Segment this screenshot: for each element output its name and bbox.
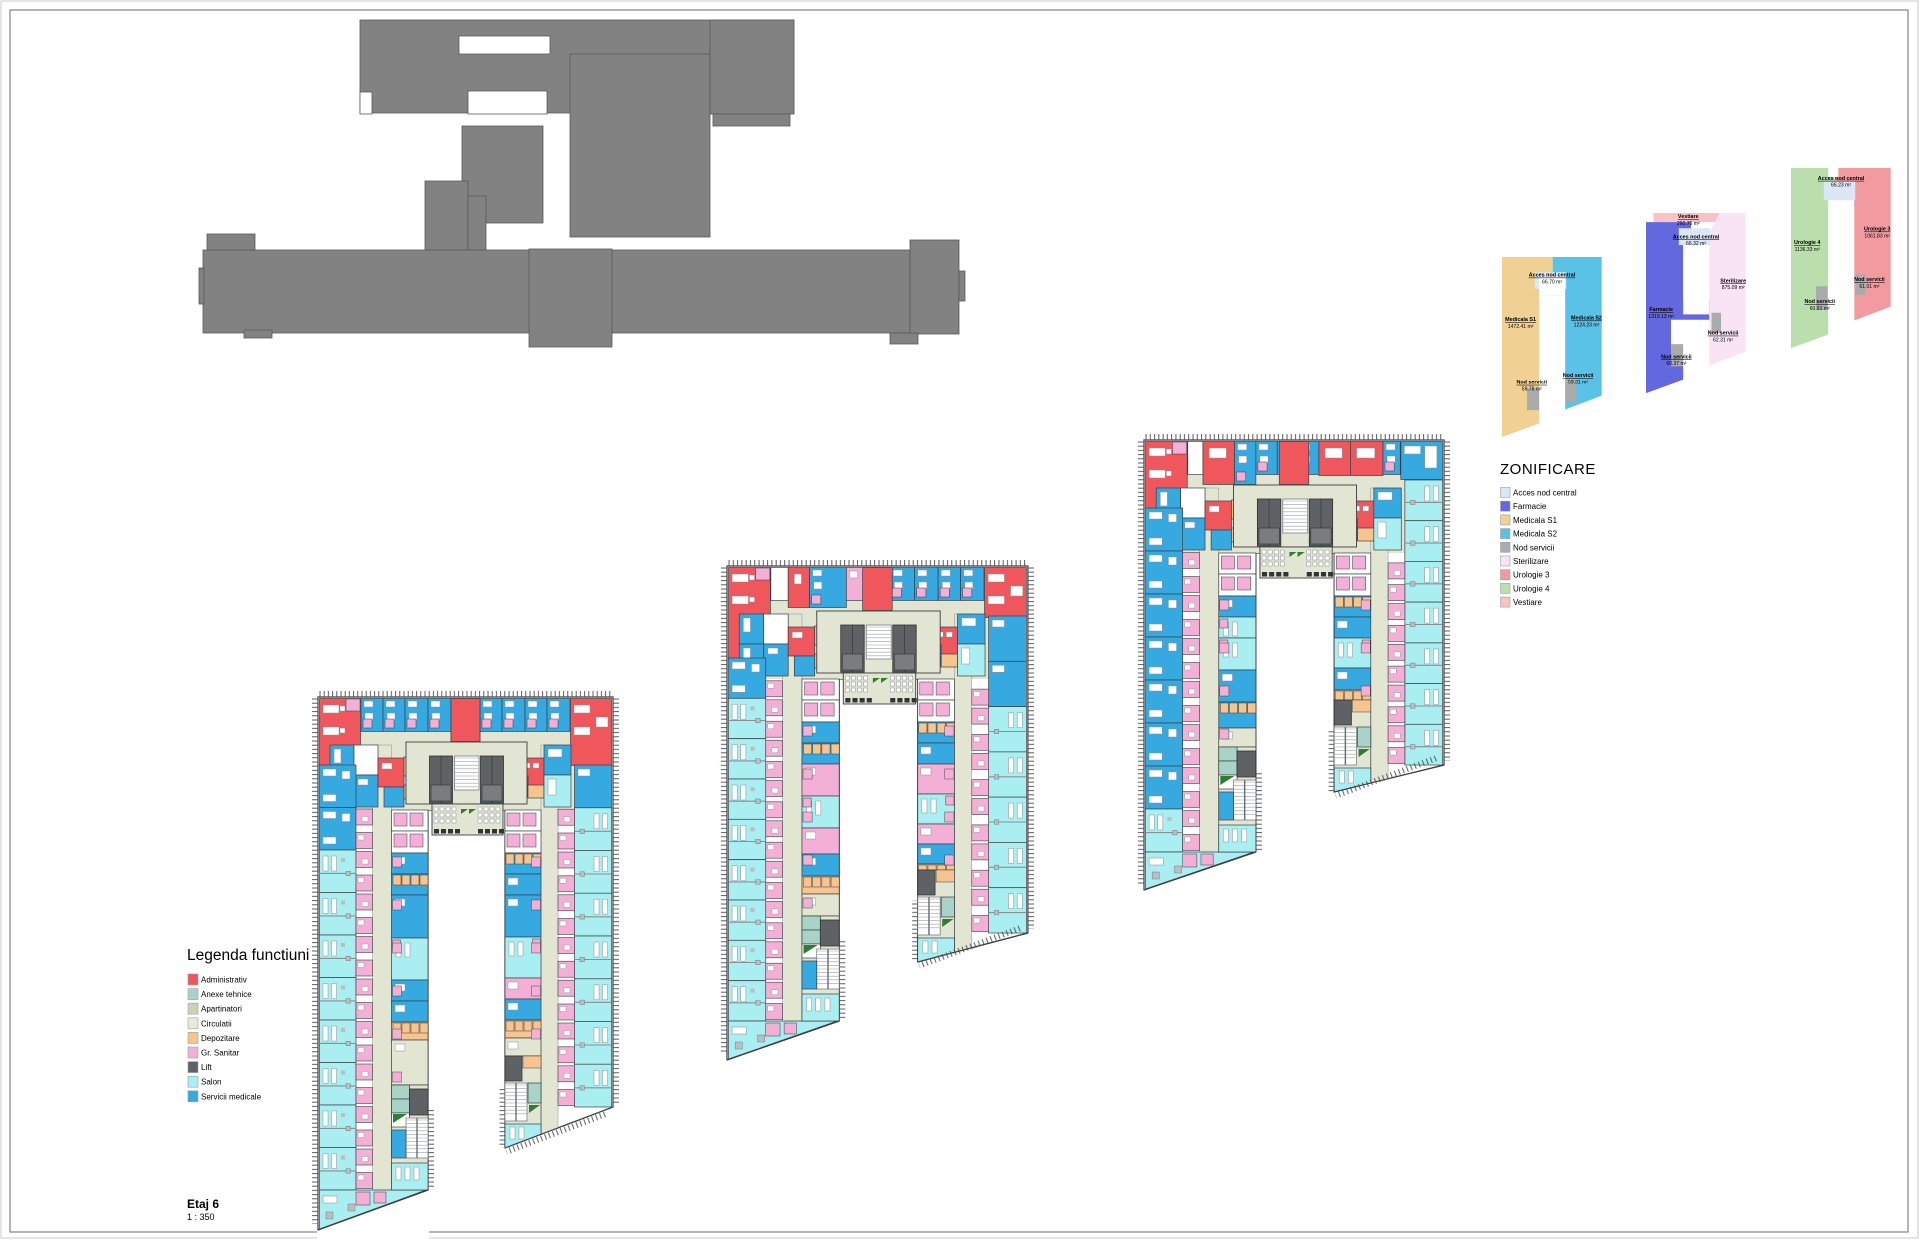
svg-text:Urologie 3: Urologie 3	[1513, 571, 1550, 580]
svg-text:60.37 m²: 60.37 m²	[1666, 361, 1686, 367]
svg-text:Sterilizare: Sterilizare	[1513, 557, 1549, 566]
svg-text:Nod servicii: Nod servicii	[1516, 380, 1547, 386]
svg-text:Nod servicii: Nod servicii	[1513, 543, 1555, 552]
svg-text:59.31 m²: 59.31 m²	[1568, 380, 1588, 386]
svg-text:Medicala S1: Medicala S1	[1505, 317, 1536, 323]
svg-text:1472.41 m²: 1472.41 m²	[1508, 324, 1534, 330]
svg-text:Vestiare: Vestiare	[1678, 214, 1699, 220]
svg-text:Farmacie: Farmacie	[1649, 307, 1673, 313]
svg-text:1136.33 m²: 1136.33 m²	[1795, 247, 1821, 253]
svg-text:Depozitare: Depozitare	[201, 1034, 240, 1043]
svg-text:Acces nod central: Acces nod central	[1513, 489, 1577, 498]
svg-text:Farmacie: Farmacie	[1513, 502, 1547, 511]
svg-text:60.91 m²: 60.91 m²	[1810, 306, 1830, 312]
svg-text:1 : 350: 1 : 350	[187, 1212, 215, 1222]
svg-text:Medicala S2: Medicala S2	[1571, 316, 1602, 322]
svg-text:Medicala S2: Medicala S2	[1513, 530, 1558, 539]
svg-text:61.01 m²: 61.01 m²	[1859, 284, 1879, 290]
svg-text:Gr. Sanitar: Gr. Sanitar	[201, 1049, 240, 1058]
svg-text:Urologie 4: Urologie 4	[1794, 240, 1820, 246]
svg-text:Medicala S1: Medicala S1	[1513, 516, 1558, 525]
svg-text:Etaj 6: Etaj 6	[187, 1197, 219, 1211]
svg-text:ZONIFICARE: ZONIFICARE	[1500, 461, 1596, 478]
svg-text:1061.83 m²: 1061.83 m²	[1864, 233, 1890, 239]
svg-text:Acces nod central: Acces nod central	[1529, 273, 1576, 279]
svg-text:Nod servicii: Nod servicii	[1804, 299, 1835, 305]
svg-text:Servicii medicale: Servicii medicale	[201, 1092, 262, 1101]
svg-text:Vestiare: Vestiare	[1513, 598, 1542, 607]
svg-text:Nod servicii: Nod servicii	[1708, 331, 1739, 337]
svg-text:Nod servicii: Nod servicii	[1854, 277, 1885, 283]
svg-text:Salon: Salon	[201, 1078, 221, 1087]
svg-text:Acces nod central: Acces nod central	[1818, 176, 1865, 182]
svg-text:59.78 m²: 59.78 m²	[1522, 387, 1542, 393]
svg-text:Urologie 3: Urologie 3	[1864, 227, 1890, 233]
svg-text:66.70 m²: 66.70 m²	[1542, 279, 1562, 285]
svg-text:66.23 m²: 66.23 m²	[1831, 183, 1851, 189]
svg-text:Urologie 4: Urologie 4	[1513, 584, 1550, 593]
svg-text:Legenda functiuni: Legenda functiuni	[187, 947, 309, 964]
svg-text:Nod servicii: Nod servicii	[1661, 354, 1692, 360]
svg-text:1224.23 m²: 1224.23 m²	[1574, 322, 1600, 328]
svg-text:62.31 m²: 62.31 m²	[1713, 337, 1733, 343]
svg-text:66.32 m²: 66.32 m²	[1686, 241, 1706, 247]
svg-text:875.09 m²: 875.09 m²	[1722, 285, 1745, 291]
svg-text:Acces nod central: Acces nod central	[1673, 234, 1720, 240]
svg-text:Administrativ: Administrativ	[201, 976, 247, 985]
svg-text:Nod servicii: Nod servicii	[1563, 373, 1594, 379]
svg-text:260.76 m²: 260.76 m²	[1677, 221, 1700, 227]
svg-text:Sterilizare: Sterilizare	[1720, 278, 1746, 284]
svg-text:Anexe tehnice: Anexe tehnice	[201, 990, 252, 999]
svg-text:Apartinatori: Apartinatori	[201, 1005, 242, 1014]
svg-text:Circulatii: Circulatii	[201, 1019, 232, 1028]
svg-text:Lift: Lift	[201, 1063, 212, 1072]
svg-text:1319.13 m²: 1319.13 m²	[1648, 314, 1674, 320]
